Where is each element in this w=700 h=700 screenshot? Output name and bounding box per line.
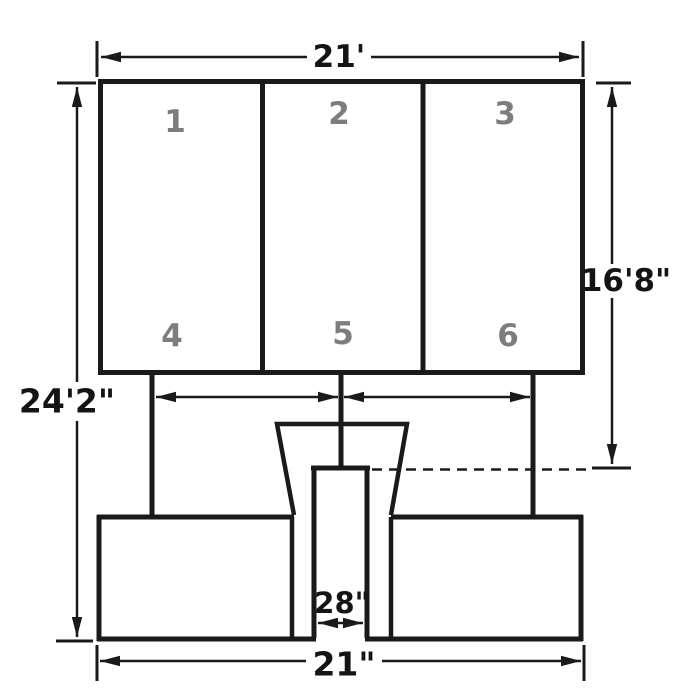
dimension-drawing: 1 2 3 4 5 6 21' 24'2" 16'8" 28" 21" — [0, 0, 700, 700]
pole-width-dimension-label: 28" — [314, 586, 369, 620]
top-width-dimension-label: 21' — [313, 39, 366, 75]
overall-height-dimension-label: 24'2" — [19, 382, 115, 421]
base-width-dimension-label: 21" — [312, 645, 375, 684]
panel-6-label: 6 — [497, 318, 519, 354]
panel-5-label: 5 — [332, 316, 354, 352]
panel-4-label: 4 — [161, 318, 183, 354]
panel-2-label: 2 — [328, 96, 350, 132]
drawing-canvas: 1 2 3 4 5 6 21' 24'2" 16'8" 28" 21" — [0, 0, 700, 700]
sign-face-height-dimension-label: 16'8" — [581, 263, 671, 299]
panel-3-label: 3 — [494, 96, 516, 132]
panel-1-label: 1 — [164, 104, 186, 140]
